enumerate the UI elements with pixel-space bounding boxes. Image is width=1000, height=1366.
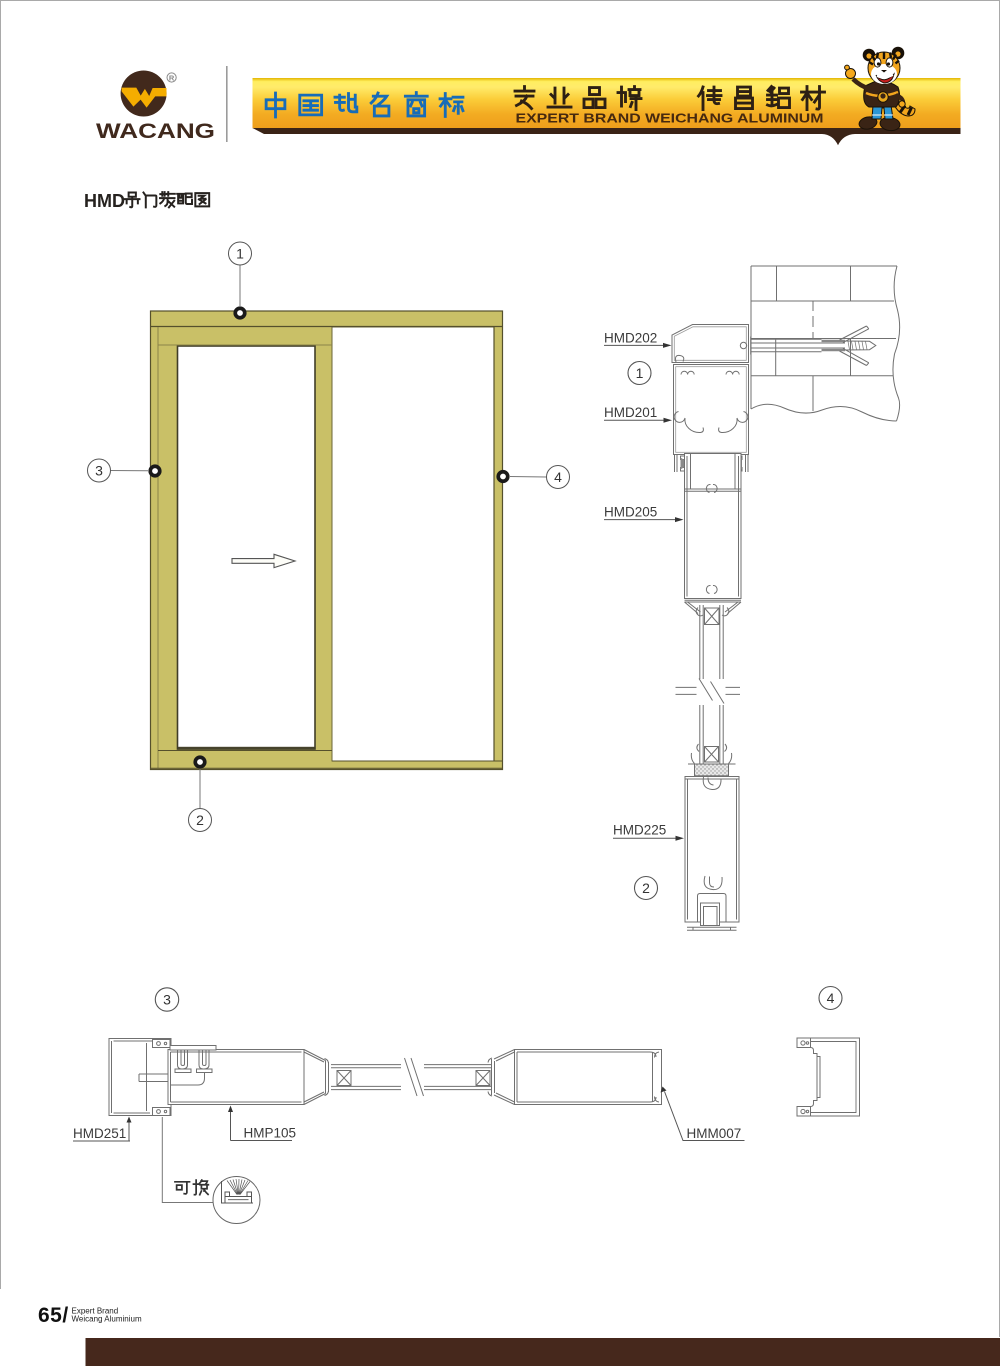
- svg-text:HMD202: HMD202: [604, 331, 657, 346]
- svg-text:HMD205: HMD205: [604, 505, 657, 520]
- svg-text:4: 4: [554, 469, 562, 485]
- svg-text:2: 2: [642, 880, 650, 896]
- svg-text:3: 3: [163, 992, 171, 1008]
- svg-text:HMD225: HMD225: [613, 823, 666, 838]
- svg-text:HMD201: HMD201: [604, 405, 657, 420]
- svg-text:R: R: [169, 74, 175, 83]
- svg-text:4: 4: [827, 990, 835, 1006]
- svg-text:1: 1: [236, 246, 244, 262]
- svg-text:1: 1: [636, 365, 644, 381]
- svg-text:3: 3: [95, 463, 103, 479]
- svg-text:HMM007: HMM007: [687, 1126, 742, 1141]
- svg-text:EXPERT BRAND WEICHANG ALUMINUM: EXPERT BRAND WEICHANG ALUMINUM: [516, 111, 824, 126]
- svg-text:WACANG: WACANG: [96, 119, 215, 143]
- svg-text:Weicang Aluminium: Weicang Aluminium: [72, 1315, 142, 1324]
- svg-text:65/: 65/: [38, 1304, 69, 1327]
- svg-text:HMD251: HMD251: [73, 1126, 126, 1141]
- svg-text:HMP105: HMP105: [244, 1126, 297, 1141]
- svg-text:HMD: HMD: [84, 191, 125, 211]
- svg-text:2: 2: [196, 812, 204, 828]
